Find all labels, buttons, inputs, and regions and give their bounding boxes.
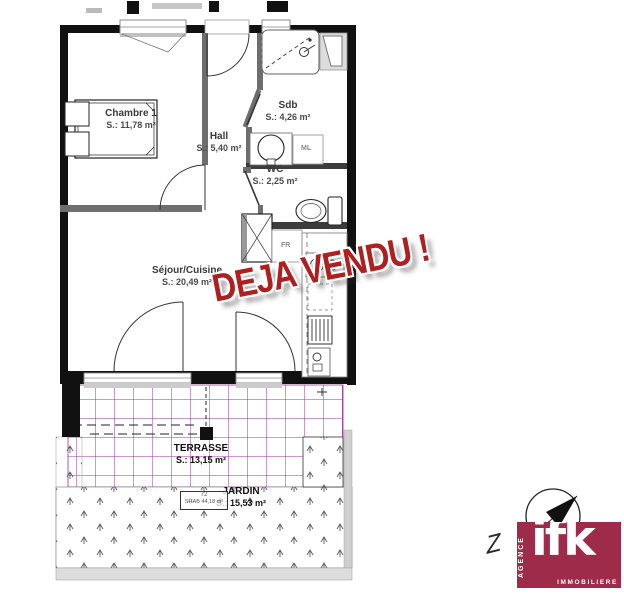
agency-logo-brand: ifk <box>531 522 593 567</box>
shower-icon <box>262 30 319 74</box>
toilet-icon <box>296 197 342 225</box>
kitchen-sink-icon <box>308 348 330 376</box>
garden-edge-strip <box>344 430 352 568</box>
floor-plan-page: Chambre 1 S.: 11,78 m² Hall S.: 5,40 m² … <box>0 0 624 597</box>
bay-window-a <box>84 373 191 388</box>
wardrobe-icon <box>242 214 272 262</box>
terrace-side-wall <box>62 373 80 437</box>
sink-icon <box>250 133 292 165</box>
agency-logo: AGENCE ifk IMMOBILIERE <box>517 522 621 588</box>
window-chambre <box>120 20 186 37</box>
garden-bottom-band <box>56 568 352 580</box>
upper-structure-marks <box>86 1 288 14</box>
bay-window-b <box>236 373 282 388</box>
washing-machine-label: ML <box>301 145 311 152</box>
compass-letter: Z <box>485 528 503 561</box>
unit-tag: 72 SHAB 44,18 m² <box>180 491 228 510</box>
agency-logo-bottom-text: IMMOBILIERE <box>557 579 618 586</box>
bed-icon <box>65 100 157 158</box>
agency-logo-side-text: AGENCE <box>518 530 525 584</box>
oven-icon <box>308 316 332 344</box>
fridge-label: FR <box>281 242 290 249</box>
entrance-opening <box>205 20 249 34</box>
floor-plan-drawing <box>0 0 624 597</box>
